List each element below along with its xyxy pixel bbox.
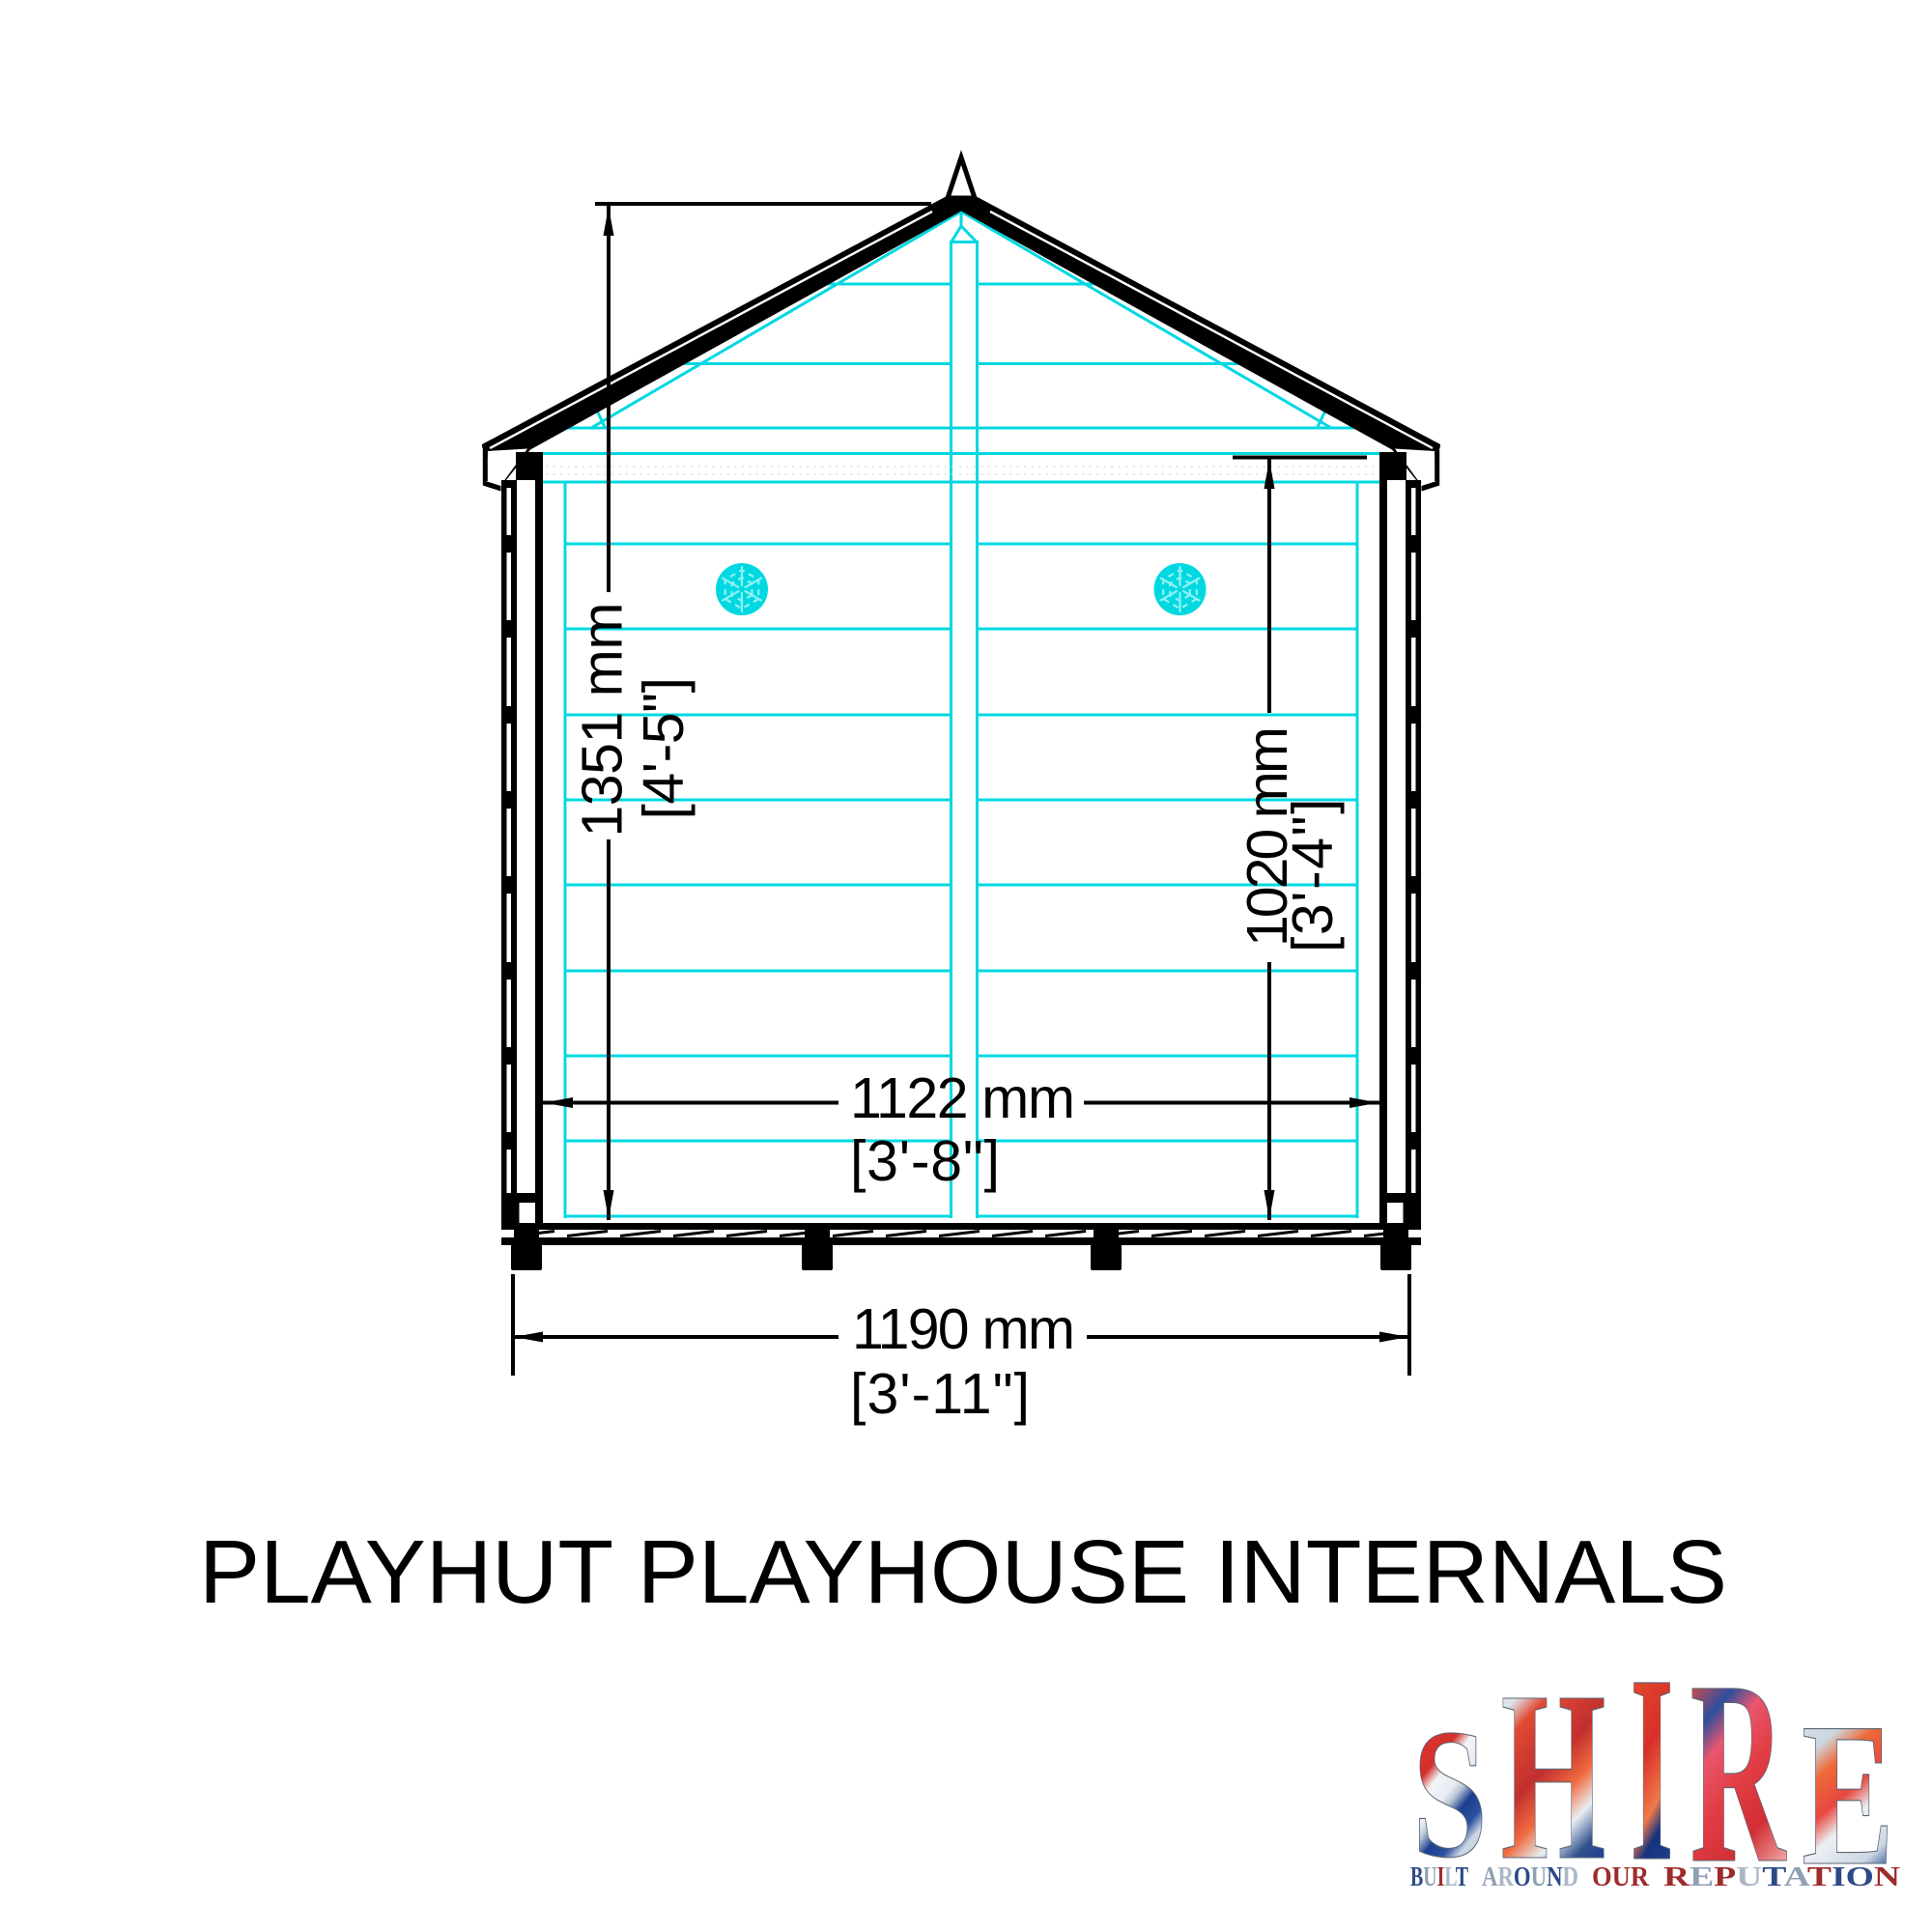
svg-text:[3'-8"]: [3'-8"] — [850, 1129, 1000, 1193]
svg-text:1190 mm: 1190 mm — [852, 1297, 1075, 1361]
svg-text:[3'-11"]: [3'-11"] — [850, 1362, 1030, 1426]
svg-text:BUILT: BUILT — [1410, 1861, 1468, 1892]
svg-text:OUR: OUR — [1592, 1861, 1650, 1892]
svg-text:AROUND: AROUND — [1482, 1861, 1578, 1892]
svg-text:[3'-4"]: [3'-4"] — [1281, 799, 1345, 953]
svg-text:1351 mm: 1351 mm — [571, 603, 635, 838]
svg-text:1122 mm: 1122 mm — [850, 1066, 1075, 1130]
svg-text:[4'-5"]: [4'-5"] — [632, 677, 696, 820]
svg-text:REPUTATION: REPUTATION — [1663, 1861, 1900, 1892]
svg-text:PLAYHUT PLAYHOUSE INTERNALS: PLAYHUT PLAYHOUSE INTERNALS — [199, 1521, 1727, 1622]
